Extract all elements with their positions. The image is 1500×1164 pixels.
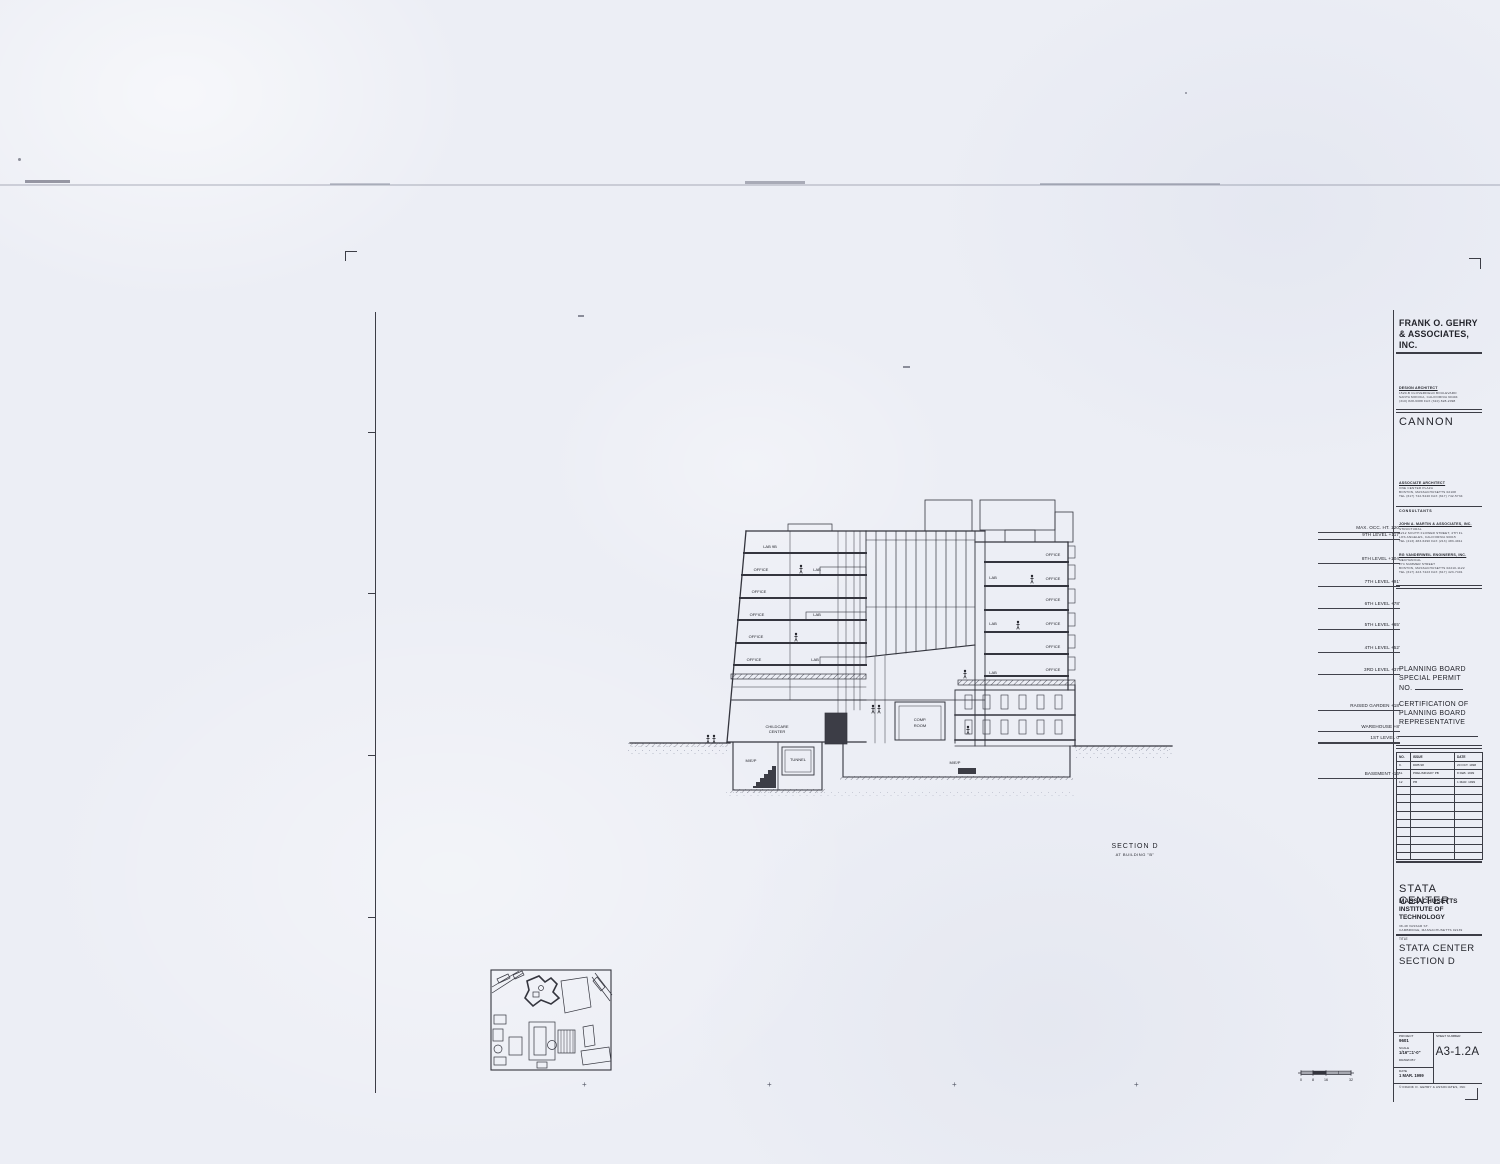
scan-smudge (1040, 183, 1220, 185)
room-label: LAB (989, 575, 997, 580)
alignment-tick: + (767, 1081, 772, 1089)
level-label: 3RD LEVEL +37' (1318, 667, 1400, 675)
scale-tick-label: 16 (1324, 1078, 1328, 1082)
room-label: CENTER (769, 729, 786, 734)
border-tick (368, 755, 375, 756)
revision-row-empty (1397, 845, 1482, 853)
certification-block: CERTIFICATION OF PLANNING BOARD REPRESEN… (1399, 700, 1482, 727)
title-label: TITLE (1399, 937, 1482, 941)
room-label: LAB (813, 612, 821, 617)
project-site-footprint (525, 976, 559, 1006)
room-label: LAB (813, 567, 821, 572)
alignment-tick: + (1134, 1081, 1139, 1089)
room-label: TUNNEL (790, 757, 807, 762)
left-parapet (788, 524, 832, 531)
room-label: LAB (989, 621, 997, 626)
consultant-name: JOHN A. MARTIN & ASSOCIATES, INC. (1399, 522, 1482, 527)
sheet-title: STATA CENTER SECTION D (1399, 942, 1482, 968)
raised-garden-slab-right (958, 680, 1075, 685)
room-label: OFFICE (1046, 576, 1061, 581)
alignment-tick: + (582, 1081, 587, 1089)
level-label: 9TH LEVEL +117' (1318, 532, 1400, 540)
design-architect-block: DESIGN ARCHITECT 1520-B CLOVERFIELD BOUL… (1399, 386, 1482, 403)
stamp-project-number: 9601 (1399, 1038, 1482, 1043)
scan-smudge (745, 181, 805, 184)
border-tick (368, 593, 375, 594)
level-label: 7TH LEVEL +91' (1318, 579, 1400, 587)
level-label: BASEMENT -16' (1318, 771, 1400, 779)
corner-mark (1480, 258, 1481, 269)
consultant-mechanical-block: RG VANDERWEIL ENGINEERS, INC. MECHANICAL… (1399, 553, 1482, 574)
room-label: COMP. (914, 717, 927, 722)
stamp-drawn-by-label: DRAWN BY (1399, 1058, 1482, 1062)
revision-table-header: NO. ISSUE DATE (1397, 753, 1482, 762)
drawing-sheet: + + + + (0, 0, 1500, 1164)
section-caption-subtitle: AT BUILDING "B" (1085, 852, 1185, 857)
scan-smudge (330, 183, 390, 185)
alignment-tick: + (952, 1081, 957, 1089)
revision-row-empty (1397, 837, 1482, 845)
scale-tick-label: 8 (1312, 1078, 1314, 1082)
room-label: OFFICE (754, 567, 769, 572)
firm-name-line2: & ASSOCIATES, INC. (1399, 329, 1482, 351)
consultant-structural-block: JOHN A. MARTIN & ASSOCIATES, INC. STRUCT… (1399, 522, 1482, 543)
scan-smudge (25, 180, 70, 183)
room-label: OFFICE (747, 657, 762, 662)
copyright-notice: © FRANK O. GEHRY & ASSOCIATES, INC (1399, 1085, 1482, 1089)
revision-row-empty (1397, 820, 1482, 828)
section-caption-title: SECTION D (1085, 843, 1185, 850)
permit-number-blank (1415, 683, 1463, 690)
room-label: ROOM (914, 723, 926, 728)
stamp-sheet-number-label: SHEET NUMBER (1436, 1034, 1461, 1038)
corner-mark (345, 251, 357, 252)
border-tick (368, 432, 375, 433)
revision-table: NO. ISSUE DATE 9. DRB 98 20 OCT. 1998 11… (1396, 752, 1483, 860)
basement-stairs (753, 766, 776, 788)
level-label: RAISED GARDEN +18' (1318, 703, 1400, 711)
level-label: 8TH LEVEL +104' (1318, 556, 1400, 564)
stamp-date-value: 1 MAR. 1999 (1399, 1073, 1482, 1078)
revision-row: 12 PB 1 MAR. 1999 (1397, 779, 1482, 787)
room-label: OFFICE (750, 612, 765, 617)
striped-building (558, 1030, 575, 1053)
revision-row: 11. PRELIMINARY PB 8 FEB. 1999 (1397, 770, 1482, 778)
room-label: OFFICE (1046, 644, 1061, 649)
associate-architect-block: ASSOCIATE ARCHITECT ONE CENTER PLAZA BOS… (1399, 481, 1482, 498)
level-label: 4TH LEVEL +52' (1318, 645, 1400, 653)
room-label: OFFICE (1046, 621, 1061, 626)
planning-board-permit: PLANNING BOARD SPECIAL PERMIT NO. (1399, 665, 1482, 693)
room-label: M/E/P (950, 760, 961, 765)
client-address: 38-48 VASSAR ST. CAMBRIDGE, MASSACHUSETT… (1399, 924, 1482, 932)
revision-row-empty (1397, 787, 1482, 795)
client-name: MASSACHUSETTS INSTITUTE OF TECHNOLOGY (1399, 898, 1482, 922)
room-label: LAB (989, 670, 997, 675)
level-label: WAREHOUSE +8' (1318, 724, 1400, 732)
revision-row-empty (1397, 812, 1482, 820)
revision-row-empty (1397, 795, 1482, 803)
revision-row: 9. DRB 98 20 OCT. 1998 (1397, 762, 1482, 770)
room-label: M/E/P (746, 758, 757, 763)
elevator-core (825, 713, 847, 744)
scale-tick-label: 0 (1300, 1078, 1302, 1082)
room-label: OFFICE (1046, 667, 1061, 672)
rooftop-penthouse (925, 500, 972, 531)
consultants-label: CONSULTANTS (1399, 509, 1482, 514)
firm-name-line1: FRANK O. GEHRY (1399, 318, 1482, 329)
revision-row-empty (1397, 828, 1482, 836)
revision-row-empty (1397, 803, 1482, 811)
room-label: LAB (811, 657, 819, 662)
room-label: LAB 9B (763, 544, 777, 549)
scale-tick-label: 32 (1349, 1078, 1353, 1082)
key-site-plan (489, 967, 615, 1077)
level-label: 6TH LEVEL +78' (1318, 601, 1400, 609)
associate-firm-name: CANNON (1399, 416, 1482, 428)
room-label: OFFICE (1046, 597, 1061, 602)
room-label: OFFICE (749, 634, 764, 639)
firm-name: FRANK O. GEHRY & ASSOCIATES, INC. (1399, 318, 1482, 351)
scan-line (0, 184, 1500, 186)
section-caption: SECTION D AT BUILDING "B" (1085, 843, 1185, 857)
atrium-diagonal (866, 645, 975, 657)
west-sloping-wall (727, 531, 746, 742)
title-block: FRANK O. GEHRY & ASSOCIATES, INC. DESIGN… (1393, 310, 1484, 1102)
room-label: OFFICE (1046, 552, 1061, 557)
corner-mark (345, 251, 346, 261)
building-section-drawing: LAB 9B OFFICE LAB OFFICE OFFICE LAB OFFI… (620, 490, 1180, 810)
level-label: 1ST LEVEL 0' (1318, 735, 1400, 744)
sheet-border-left (375, 312, 376, 1093)
room-label: OFFICE (752, 589, 767, 594)
border-tick (368, 917, 375, 918)
rooftop-penthouse (980, 500, 1055, 530)
level-label: 5TH LEVEL +65' (1318, 622, 1400, 630)
graphic-scale-bar: 0 8 16 32 (1290, 1064, 1370, 1086)
sheet-number: A3-1.2A (1434, 1046, 1481, 1058)
